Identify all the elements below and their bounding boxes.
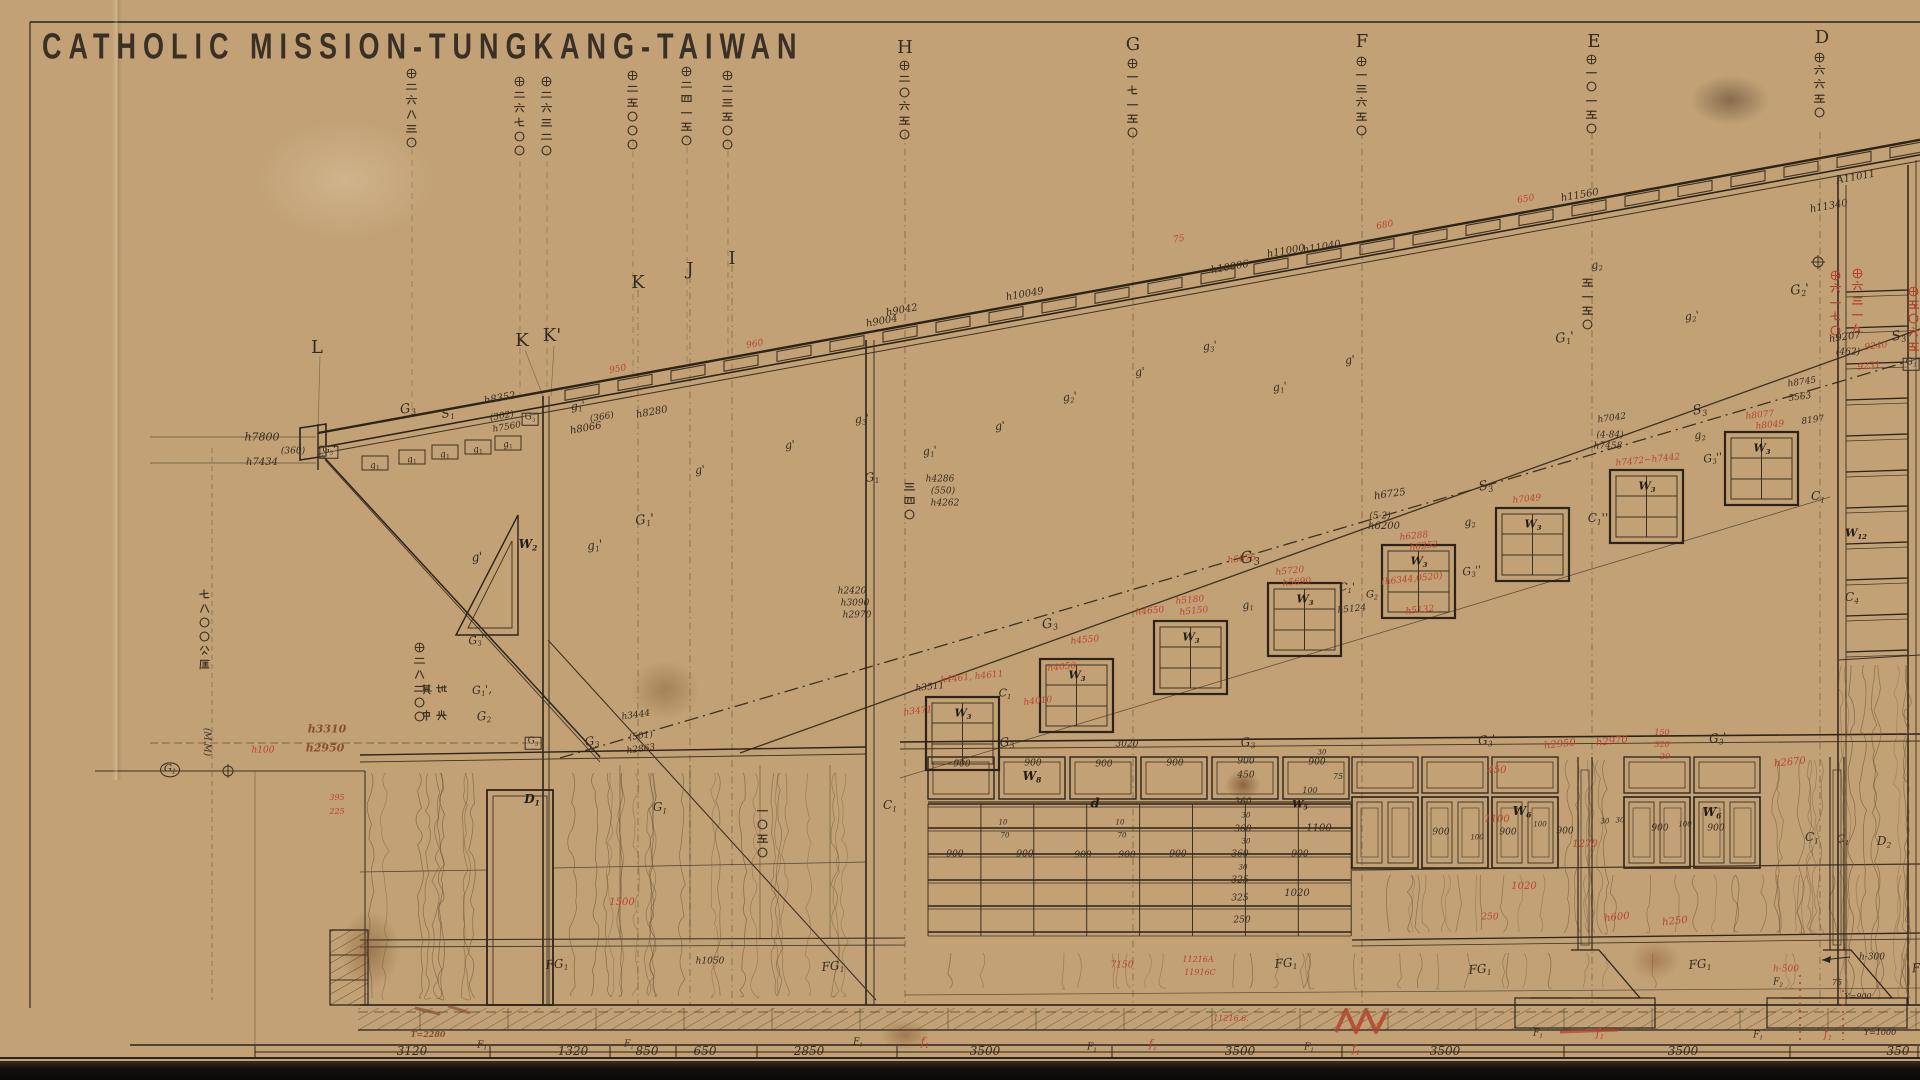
annotation: W6 — [1513, 805, 1532, 819]
annotation: G3 — [522, 413, 539, 426]
annotation: h10049 — [1005, 287, 1044, 303]
annotation: h7472~h7442 — [1615, 453, 1681, 469]
grid-letter-k: K — [515, 332, 528, 350]
annotation: 1100 — [1306, 824, 1331, 834]
annotation: F — [1911, 962, 1920, 975]
annotation: F2 — [1773, 979, 1783, 990]
annotation: G1 — [864, 470, 880, 486]
annotation: 250 — [1481, 914, 1498, 923]
annotation: g2' — [1684, 309, 1700, 324]
annotation: 1100 — [1484, 815, 1509, 825]
annotation: h-300 — [1859, 954, 1885, 963]
annotation: 900 — [1016, 851, 1033, 860]
annotation: Y=900 — [1844, 993, 1871, 1001]
annotation: 30 — [1318, 750, 1327, 757]
annotation: d — [1090, 798, 1099, 811]
grid-letter-h: H — [897, 39, 913, 57]
annotation: h5124 — [1337, 604, 1366, 616]
dimension-label: 850 — [636, 1045, 659, 1057]
annotation: h11560 — [1560, 188, 1599, 204]
window-w3-label: W3 — [1638, 480, 1655, 493]
annotation: 450 — [1237, 772, 1254, 781]
annotation: S3 — [1692, 402, 1708, 419]
annotation: 325 — [1231, 895, 1248, 904]
window-w3-label: W3 — [1068, 669, 1085, 682]
annotation: (501) — [628, 731, 653, 743]
annotation: h4286 — [926, 476, 955, 485]
annotation: 900 — [953, 761, 970, 770]
annotation: (h6344,0520) — [1381, 572, 1443, 587]
annotation: h8049 — [1755, 420, 1784, 432]
annotation: F1 — [477, 1042, 487, 1053]
annotation: W5 — [1292, 800, 1308, 811]
annotation: h11040 — [1302, 240, 1341, 256]
annotation: 900 — [1118, 852, 1135, 861]
annotation: 900 — [1169, 851, 1186, 860]
annotation: 70 — [1118, 833, 1127, 840]
annotation: h6200 — [1368, 522, 1400, 532]
annotation: 650 — [1517, 194, 1535, 206]
annotation: 11216A — [1182, 956, 1213, 964]
annotation: 150 — [1654, 729, 1669, 737]
annotation: h11000 — [1266, 244, 1305, 260]
annotation: S3 — [1891, 328, 1907, 345]
annotation: (M.M) — [202, 728, 211, 756]
annotation: G2 — [1366, 590, 1378, 601]
dimension-label: 3120 — [397, 1045, 428, 1057]
annotation: g1 — [502, 440, 513, 452]
window-w3-label: W3 — [1753, 442, 1770, 455]
annotation: G1 — [653, 801, 667, 815]
annotation: g' — [784, 439, 796, 451]
window-w3-label: W3 — [1296, 593, 1313, 606]
annotation: G3'' — [468, 633, 489, 649]
annotation: 900 — [1024, 760, 1041, 769]
blueprint-sheet: CATHOLIC MISSION-TUNGKANG-TAIWAN h8352(3… — [0, 0, 1920, 1080]
annotation: F1 — [1533, 1030, 1543, 1041]
annotation: F1 — [1304, 1044, 1314, 1055]
photo-edge — [0, 1061, 1920, 1080]
annotation: 900 — [1074, 852, 1091, 861]
annotation: h7560 — [492, 421, 522, 435]
annotation: G1' — [1555, 330, 1576, 347]
annotation: g' — [1134, 366, 1146, 378]
annotation: G3' — [1477, 733, 1496, 749]
annotation: h2970 — [1596, 735, 1629, 748]
dimension-label: 2850 — [794, 1045, 825, 1057]
annotation: h5690 — [1282, 577, 1311, 589]
annotation: 75 — [1333, 773, 1343, 781]
annotation: h-500 — [1773, 966, 1799, 975]
annotation: g1 — [406, 455, 417, 467]
annotation: g2 — [1463, 516, 1476, 531]
annotation: h600 — [1604, 912, 1630, 925]
annotation: F1 — [1087, 1044, 1097, 1055]
annotation: FG1 — [821, 959, 845, 975]
annotation: h4550 — [1070, 635, 1099, 647]
annotation: g' — [471, 550, 484, 563]
annotation: 100 — [1533, 822, 1546, 829]
dimension-label: 650 — [694, 1045, 717, 1057]
annotation: (462) — [1836, 349, 1860, 358]
annotation: h1050 — [696, 958, 725, 967]
annotation: G3'' — [1462, 564, 1483, 580]
annotation: f1 — [921, 1036, 929, 1049]
annotation: G3 — [525, 737, 542, 750]
annotation: T=2280 — [411, 1030, 446, 1038]
annotation: 75 — [1832, 979, 1842, 987]
annotation: g1 — [439, 450, 450, 462]
annotation: h4262 — [931, 500, 960, 509]
annotation: 9240 — [1864, 341, 1888, 352]
dimension-label: 1320 — [558, 1045, 589, 1057]
annotation: 900 — [1651, 825, 1668, 834]
annotation: A11011 — [1836, 170, 1876, 187]
annotation: F1 — [853, 1039, 863, 1050]
annotation: FG1 — [1688, 957, 1712, 973]
annotation: 7150 — [1111, 962, 1134, 971]
annotation: 1020 — [1284, 889, 1309, 899]
annotation: 11916C — [1184, 969, 1216, 977]
grid-letter-kp: K' — [543, 327, 561, 345]
annotation: 225 — [329, 808, 344, 816]
annotation: g3' — [1202, 339, 1218, 354]
annotation: W6 — [1703, 806, 1722, 820]
annotation: 1270 — [1572, 840, 1597, 850]
dimension-label: 3500 — [1225, 1045, 1256, 1057]
annotation: g3' — [854, 412, 870, 427]
annotation: 395 — [329, 794, 344, 802]
annotation: h8066 — [569, 421, 602, 436]
annotation: 30 — [1601, 819, 1610, 826]
annotation: g' — [1344, 354, 1356, 366]
annotation: g2' — [1062, 390, 1078, 405]
annotation: 900 — [1237, 758, 1254, 767]
annotation: G3 — [1041, 616, 1059, 633]
annotation: h4650 — [1135, 606, 1164, 618]
annotation: g1 — [369, 461, 380, 473]
annotation: 900 — [1499, 829, 1516, 838]
annotation: S1 — [440, 406, 455, 422]
annotation: 900 — [1291, 851, 1308, 860]
annotation: W2 — [519, 538, 538, 552]
annotation: 960 — [746, 339, 764, 351]
grid-letter-k: K — [631, 274, 644, 292]
annotation: D1 — [524, 793, 540, 807]
annotation: g2 — [1693, 429, 1706, 444]
annotation: h6252 — [1409, 541, 1438, 553]
annotation: W12 — [1845, 527, 1867, 540]
annotation: h8280 — [635, 405, 668, 420]
annotation: h7800 — [244, 432, 279, 443]
annotation: 900 — [1707, 825, 1724, 834]
annotation: D2 — [1877, 835, 1891, 849]
annotation: f1 — [1149, 1038, 1157, 1051]
annotation: C1 — [1805, 831, 1819, 845]
annotation: 100 — [1678, 822, 1691, 829]
annotation: (4-84) — [1596, 432, 1623, 441]
annotation: h3471 — [903, 706, 932, 718]
annotation: C1 — [1837, 833, 1850, 846]
dimension-label: 3500 — [1430, 1045, 1461, 1057]
annotation: FG1 — [545, 957, 569, 973]
annotation: 100 — [1470, 835, 1483, 842]
annotation: h8745 — [1787, 377, 1817, 390]
grid-letter-d: D — [1815, 29, 1829, 47]
annotation: 3020 — [1116, 741, 1139, 750]
annotation: G3 — [1240, 735, 1256, 750]
annotation: FG1 — [1274, 956, 1298, 972]
annotation: h7042 — [1597, 413, 1627, 426]
annotation: G2' — [1790, 282, 1811, 299]
annotation: h2863 — [626, 744, 656, 757]
annotation: (550) — [931, 488, 955, 497]
annotation: 1020 — [1511, 882, 1536, 892]
annotation: (360) — [281, 448, 305, 457]
annotation: 9231 — [1857, 361, 1881, 372]
annotation: G3 — [1903, 358, 1920, 371]
annotation: 950 — [609, 364, 627, 376]
annotation: G1' — [635, 512, 656, 529]
annotation: 5563 — [1788, 392, 1812, 404]
annotation: 10 — [1116, 820, 1125, 827]
annotation: 900 — [1095, 761, 1112, 770]
grid-letter-f: F — [1356, 33, 1369, 51]
annotation: G3' — [1708, 731, 1727, 747]
annotation: g1' — [922, 444, 938, 459]
annotation: h3090 — [841, 600, 870, 609]
annotation: h11340 — [1809, 199, 1848, 215]
annotation: g' — [994, 420, 1006, 432]
annotation: 900 — [946, 851, 963, 860]
grid-letter-i: I — [728, 250, 735, 268]
annotation: G3 — [999, 735, 1015, 750]
annotation: h5132 — [1405, 605, 1434, 617]
annotation: g1 — [472, 445, 483, 457]
annotation: h4461, h4611 — [940, 670, 1004, 686]
annotation: G1', — [472, 684, 493, 699]
annotation: 900 — [1556, 828, 1573, 837]
grid-letter-g: G — [1126, 36, 1140, 54]
annotation: h4010 — [1023, 696, 1052, 708]
annotation: 360 — [1234, 799, 1251, 808]
annotation: 320 — [1654, 741, 1669, 749]
annotation: 30 — [1242, 839, 1251, 846]
annotation-layer: h8352(302)h7560h8066(366)h8280g1g1g1g1g1… — [0, 0, 1920, 1080]
annotation: C1'' — [1588, 512, 1609, 526]
annotation: h100 — [252, 747, 275, 756]
annotation: 360 — [1234, 826, 1251, 835]
dimension-label: 350 — [1887, 1045, 1910, 1057]
window-w3-label: W3 — [1524, 518, 1541, 531]
annotation: C1 — [1811, 490, 1825, 504]
annotation: F1 — [624, 1041, 634, 1052]
annotation: h2950 — [306, 743, 345, 754]
annotation: f1 — [1824, 1028, 1832, 1041]
annotation: 900 — [1166, 760, 1183, 769]
annotation: h9042 — [885, 303, 918, 318]
annotation: 450 — [1487, 766, 1506, 776]
annotation: 100 — [1302, 787, 1317, 795]
annotation: g1' — [570, 399, 586, 414]
annotation: 70 — [1001, 833, 1010, 840]
annotation: h2670 — [1774, 756, 1807, 769]
annotation: 325 — [1231, 877, 1248, 886]
annotation: f1 — [1352, 1043, 1360, 1056]
window-w3-label: W3 — [1410, 555, 1427, 568]
annotation: h250 — [1662, 916, 1688, 929]
annotation: 11216.6. — [1213, 1015, 1249, 1023]
annotation: 75 — [1173, 235, 1186, 246]
annotation: 360 — [1231, 851, 1248, 860]
annotation: h5150 — [1179, 606, 1208, 618]
annotation: h7049 — [1512, 494, 1541, 506]
annotation: h9207 — [1829, 331, 1862, 345]
grid-letter-e: E — [1587, 33, 1600, 51]
annotation: 8197 — [1801, 415, 1825, 427]
annotation: h6725 — [1374, 488, 1407, 502]
annotation: G2 — [476, 709, 491, 724]
annotation: f1 — [1596, 1027, 1604, 1040]
annotation: G3' — [319, 446, 338, 459]
annotation: (366) — [589, 411, 614, 424]
annotation: G3'' — [1703, 451, 1724, 467]
annotation: g' — [694, 464, 706, 476]
annotation: FG1 — [1468, 962, 1492, 978]
grid-letter-l: L — [311, 339, 323, 357]
annotation: g1 — [1241, 599, 1254, 614]
annotation: G1 — [160, 762, 180, 777]
annotation: h3444 — [621, 710, 651, 723]
annotation: h8352 — [483, 391, 516, 406]
grid-letter-j: J — [686, 261, 693, 279]
dimension-label: 3500 — [1668, 1045, 1699, 1057]
annotation: S3 — [1478, 478, 1494, 495]
annotation: h2950 — [1544, 738, 1577, 751]
annotation: 680 — [1376, 220, 1394, 232]
annotation: 250 — [1233, 917, 1250, 926]
annotation: G3 — [399, 401, 417, 418]
annotation: Y=1000 — [1864, 1029, 1896, 1037]
annotation: W8 — [1023, 770, 1042, 784]
annotation: 30 — [1616, 818, 1625, 825]
annotation: 900 — [1432, 829, 1449, 838]
dimension-label: 3500 — [970, 1045, 1001, 1057]
annotation: F1 — [1753, 1032, 1763, 1043]
annotation: g1' — [586, 538, 604, 554]
window-w3-label: W3 — [1182, 631, 1199, 644]
annotation: 10 — [999, 820, 1008, 827]
annotation: h2970 — [843, 612, 872, 621]
annotation: h2420 — [838, 588, 867, 597]
annotation: 30 — [1239, 865, 1248, 872]
annotation: C1 — [883, 799, 897, 813]
annotation: g2 — [1590, 259, 1603, 274]
annotation: G3 — [584, 734, 600, 750]
annotation: h7434 — [246, 458, 278, 468]
annotation: 900 — [1308, 759, 1325, 768]
annotation: C1 — [999, 687, 1012, 700]
annotation: C1' — [1339, 581, 1355, 594]
annotation: 20 — [1660, 753, 1670, 761]
annotation: 30 — [1242, 813, 1251, 820]
annotation: 1500 — [609, 898, 634, 908]
window-w3-label: W3 — [954, 707, 971, 720]
annotation: C4 — [1845, 591, 1859, 605]
annotation: h7458 — [1594, 443, 1623, 452]
annotation: h3310 — [308, 724, 347, 735]
annotation: g1' — [1272, 380, 1288, 395]
annotation: h10006 — [1210, 260, 1249, 276]
